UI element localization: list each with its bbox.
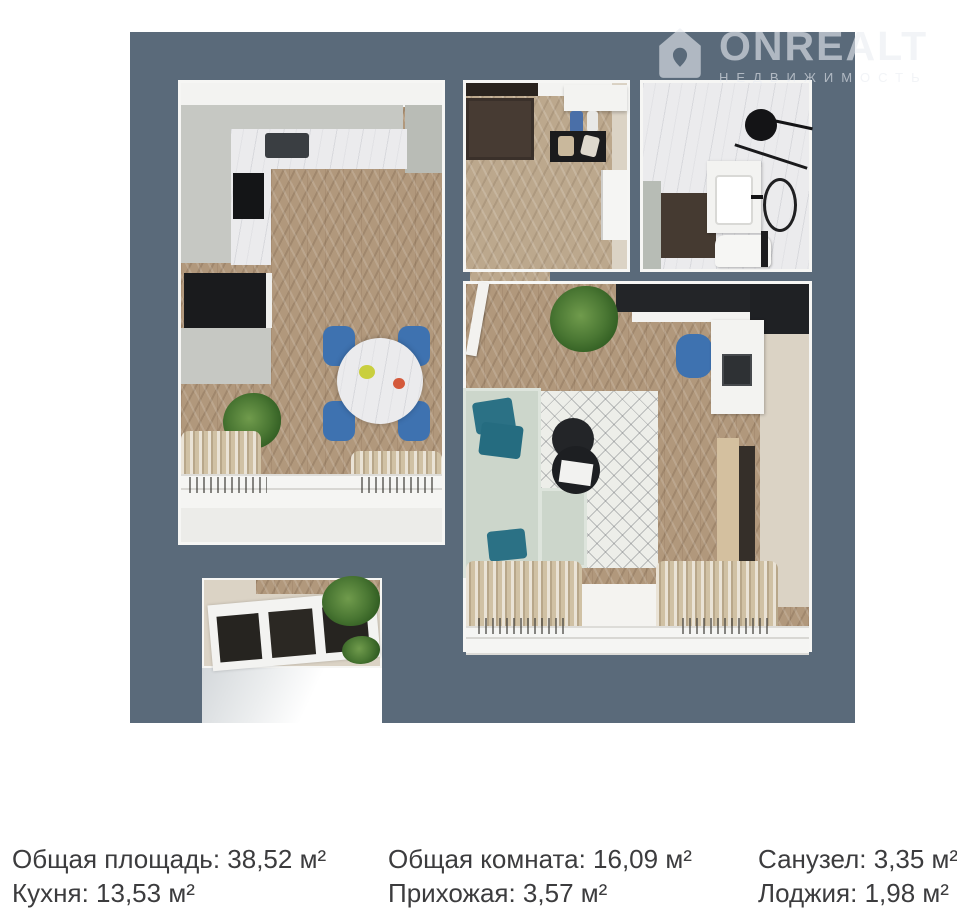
kitchen-wall bbox=[181, 83, 442, 107]
room-loggia bbox=[202, 578, 382, 668]
watermark-brand: ONREALT bbox=[719, 26, 928, 66]
stat-bathroom-area: Санузел: 3,35 м² bbox=[758, 842, 957, 876]
room-hallway bbox=[463, 80, 630, 272]
floor-plan bbox=[130, 32, 855, 723]
table-plate bbox=[393, 378, 405, 389]
kitchen-left-cabinets bbox=[181, 105, 233, 263]
coat-shelf bbox=[564, 85, 627, 111]
toilet-cistern bbox=[761, 231, 768, 267]
door-leaf bbox=[466, 282, 490, 357]
kitchen-radiator bbox=[361, 477, 433, 493]
sofa-pillow bbox=[478, 422, 524, 460]
living-radiator bbox=[682, 618, 770, 634]
loggia-plant bbox=[322, 576, 380, 626]
mirror bbox=[763, 178, 797, 232]
shower-head-icon bbox=[745, 109, 777, 141]
stat-loggia-area: Лоджия: 1,98 м² bbox=[758, 876, 957, 910]
room-living bbox=[463, 281, 812, 652]
sink-basin bbox=[715, 175, 753, 225]
dining-table bbox=[337, 338, 423, 424]
shoes bbox=[558, 136, 574, 156]
kitchen-window-sill bbox=[181, 508, 442, 542]
laptop bbox=[722, 354, 752, 386]
coffee-machine bbox=[265, 133, 309, 158]
book bbox=[559, 460, 594, 486]
window-pane bbox=[216, 613, 262, 662]
living-window-frame bbox=[466, 637, 809, 639]
plan-cutout bbox=[202, 668, 382, 723]
watermark: ONREALT НЕДВИЖИМОСТЬ bbox=[655, 26, 928, 85]
hallway-living-doorway bbox=[470, 272, 550, 281]
bathroom-door bbox=[601, 170, 627, 240]
kitchen-base-cabinet bbox=[181, 328, 271, 384]
stat-hallway-area: Прихожая: 3,57 м² bbox=[388, 876, 692, 910]
sofa-chaise bbox=[539, 488, 587, 568]
kitchen-radiator bbox=[189, 477, 267, 493]
living-plant bbox=[550, 286, 618, 352]
window-pane bbox=[268, 608, 316, 658]
floor-plan-page: ONREALT НЕДВИЖИМОСТЬ Общая площадь: 38,5… bbox=[0, 0, 957, 910]
tv-bench bbox=[717, 438, 739, 578]
hanging-clothes bbox=[587, 111, 598, 132]
room-kitchen bbox=[178, 80, 445, 545]
onrealt-house-icon bbox=[655, 26, 705, 80]
table-plate bbox=[359, 365, 375, 379]
watermark-subtitle: НЕДВИЖИМОСТЬ bbox=[719, 70, 928, 85]
faucet bbox=[751, 195, 763, 199]
room-bathroom bbox=[640, 80, 812, 272]
entrance-door bbox=[466, 83, 538, 96]
stat-living-area: Общая комната: 16,09 м² bbox=[388, 842, 692, 876]
kitchen-tall-unit bbox=[405, 105, 442, 173]
shower-arm bbox=[771, 119, 813, 131]
loggia-plant-small bbox=[342, 636, 380, 664]
desk-chair bbox=[676, 334, 712, 378]
cooktop bbox=[233, 173, 264, 219]
stat-kitchen-area: Кухня: 13,53 м² bbox=[12, 876, 326, 910]
entrance-mat bbox=[466, 98, 534, 160]
living-radiator bbox=[478, 618, 564, 634]
tv bbox=[739, 446, 755, 570]
stat-total-area: Общая площадь: 38,52 м² bbox=[12, 842, 326, 876]
oven bbox=[184, 273, 272, 328]
sofa-pillow bbox=[487, 528, 528, 562]
bathtub bbox=[643, 181, 661, 269]
